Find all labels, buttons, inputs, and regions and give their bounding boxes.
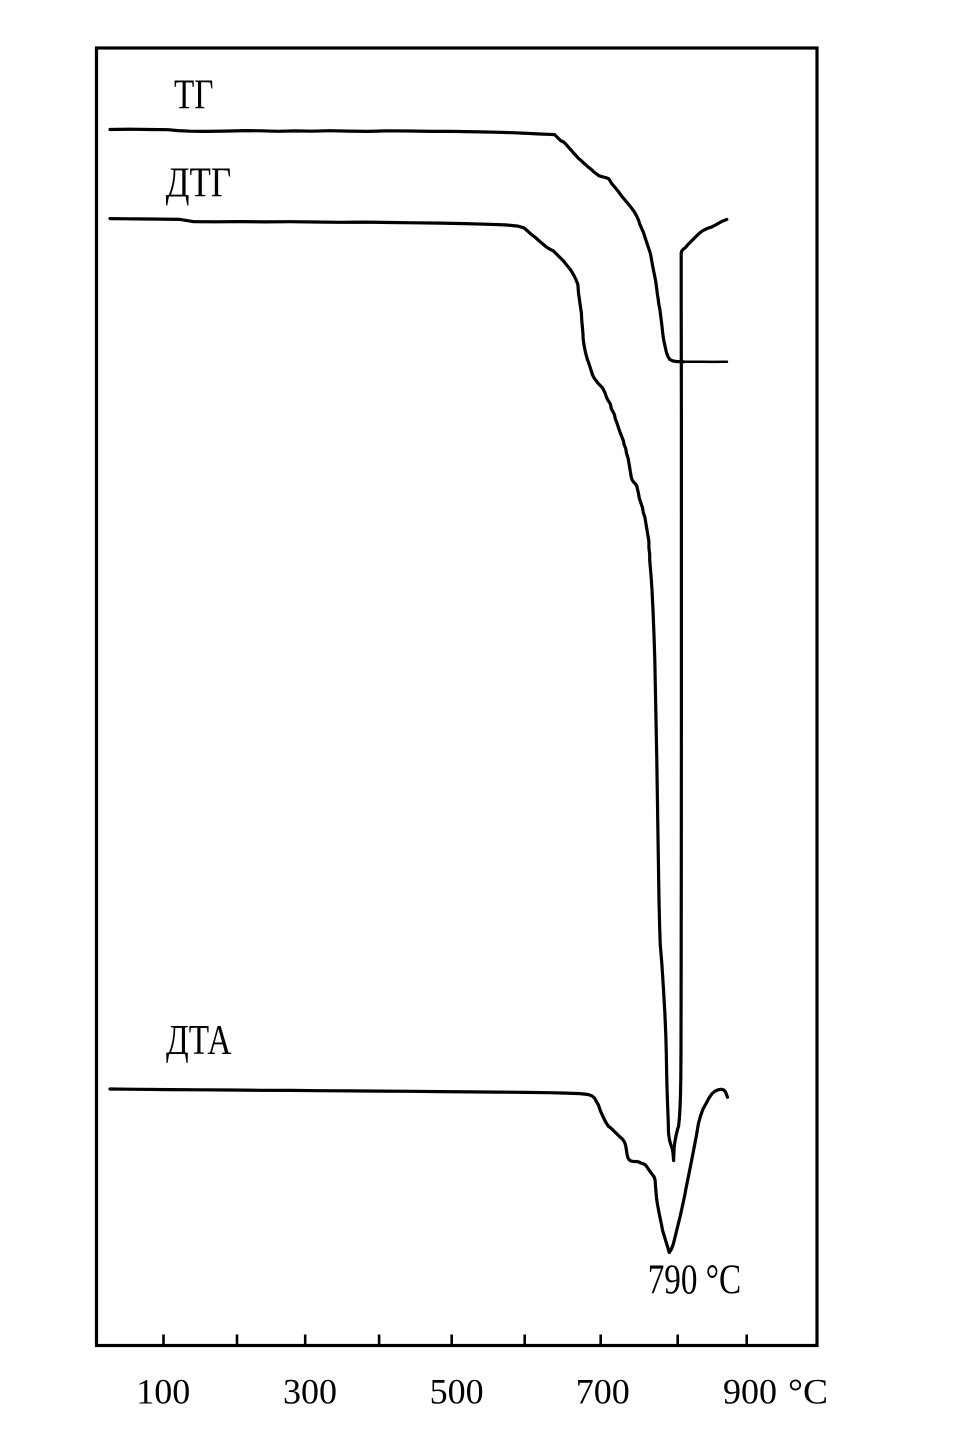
svg-text:ДТА: ДТА [166, 1018, 232, 1064]
svg-text:°C: °C [788, 1372, 828, 1412]
svg-text:ДТГ: ДТГ [166, 161, 232, 207]
svg-text:500: 500 [430, 1372, 484, 1412]
svg-text:100: 100 [136, 1372, 190, 1412]
svg-text:700: 700 [576, 1372, 630, 1412]
svg-text:ТГ: ТГ [174, 73, 214, 119]
svg-text:300: 300 [283, 1372, 337, 1412]
svg-text:790 °C: 790 °C [648, 1258, 742, 1304]
svg-text:900: 900 [723, 1372, 777, 1412]
